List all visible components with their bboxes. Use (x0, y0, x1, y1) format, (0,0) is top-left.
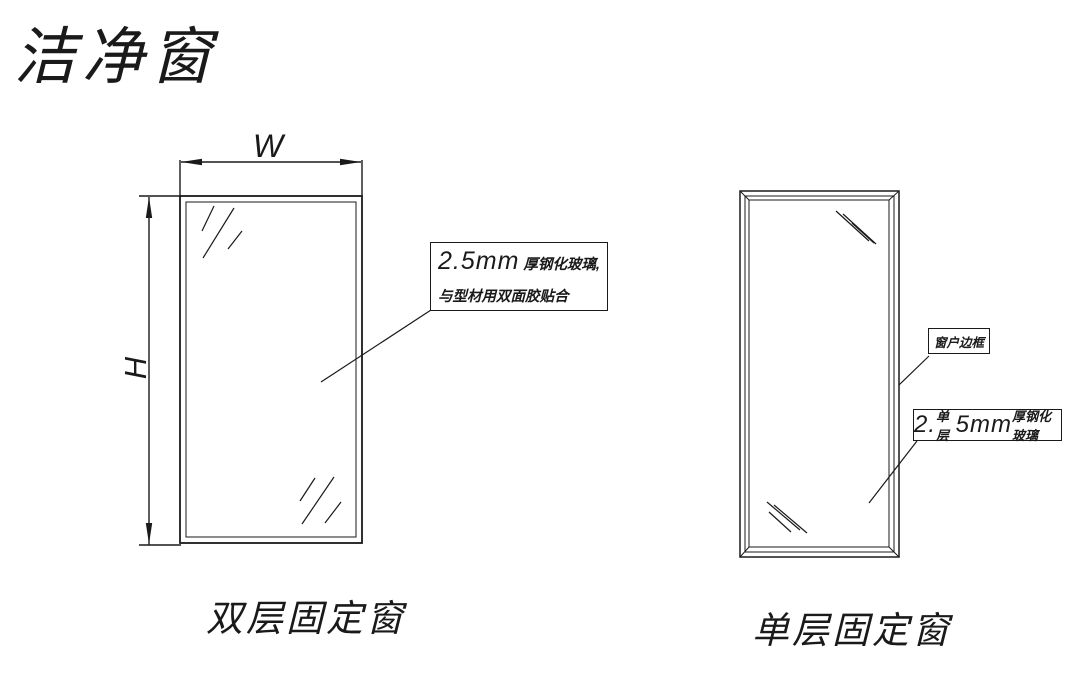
frame-annotation-box: 窗户边框 (928, 328, 990, 354)
arrowhead-left-icon (181, 159, 202, 165)
frame-annotation-label: 窗户边框 (934, 332, 984, 351)
arrowhead-right-icon (340, 159, 361, 165)
left-glass-annotation-box: 2.5mm 厚钢化玻璃, 与型材用双面胶贴合 (430, 242, 608, 311)
right-window-frame (740, 191, 899, 557)
right-glass-desc: 厚钢化玻璃 (1012, 406, 1061, 444)
right-glass-size: 5mm (956, 411, 1012, 439)
right-glass-layer: 单层 (936, 406, 956, 444)
left-window-glass-pane (186, 202, 356, 537)
left-glass-leader-line (321, 310, 431, 382)
left-window-glass-hatch-bottom (300, 477, 341, 524)
left-figure-caption: 双层固定窗 (206, 588, 406, 642)
left-glass-size: 2.5mm (438, 247, 519, 275)
left-window-outer-frame (180, 196, 362, 543)
frame-label-leader-line (899, 356, 929, 385)
arrowhead-down-icon (146, 523, 152, 544)
right-glass-leader-line (869, 441, 917, 503)
right-window-glass-hatch-bottom (767, 502, 807, 533)
right-glass-annotation-box: 2.单层5mm 厚钢化玻璃 (913, 409, 1062, 441)
width-dim-label: W (240, 128, 296, 165)
left-window-glass-hatch-top (202, 206, 242, 258)
right-figure-caption: 单层固定窗 (752, 600, 952, 654)
drawing-sheet: 洁净窗 W H 2.5mm 厚钢化玻璃, 与型材用双面胶贴合 窗户边框 2.单层… (0, 0, 1092, 675)
height-dim-label: H (118, 348, 154, 388)
right-window-glass-pane (749, 200, 889, 547)
arrowhead-up-icon (146, 197, 152, 218)
right-window-outer-frame (740, 191, 899, 557)
sheet-title: 洁净窗 (14, 6, 218, 96)
right-glass-index: 2. (914, 411, 936, 439)
left-window-frame (180, 196, 362, 543)
right-window-glass-hatch-top (836, 211, 876, 244)
